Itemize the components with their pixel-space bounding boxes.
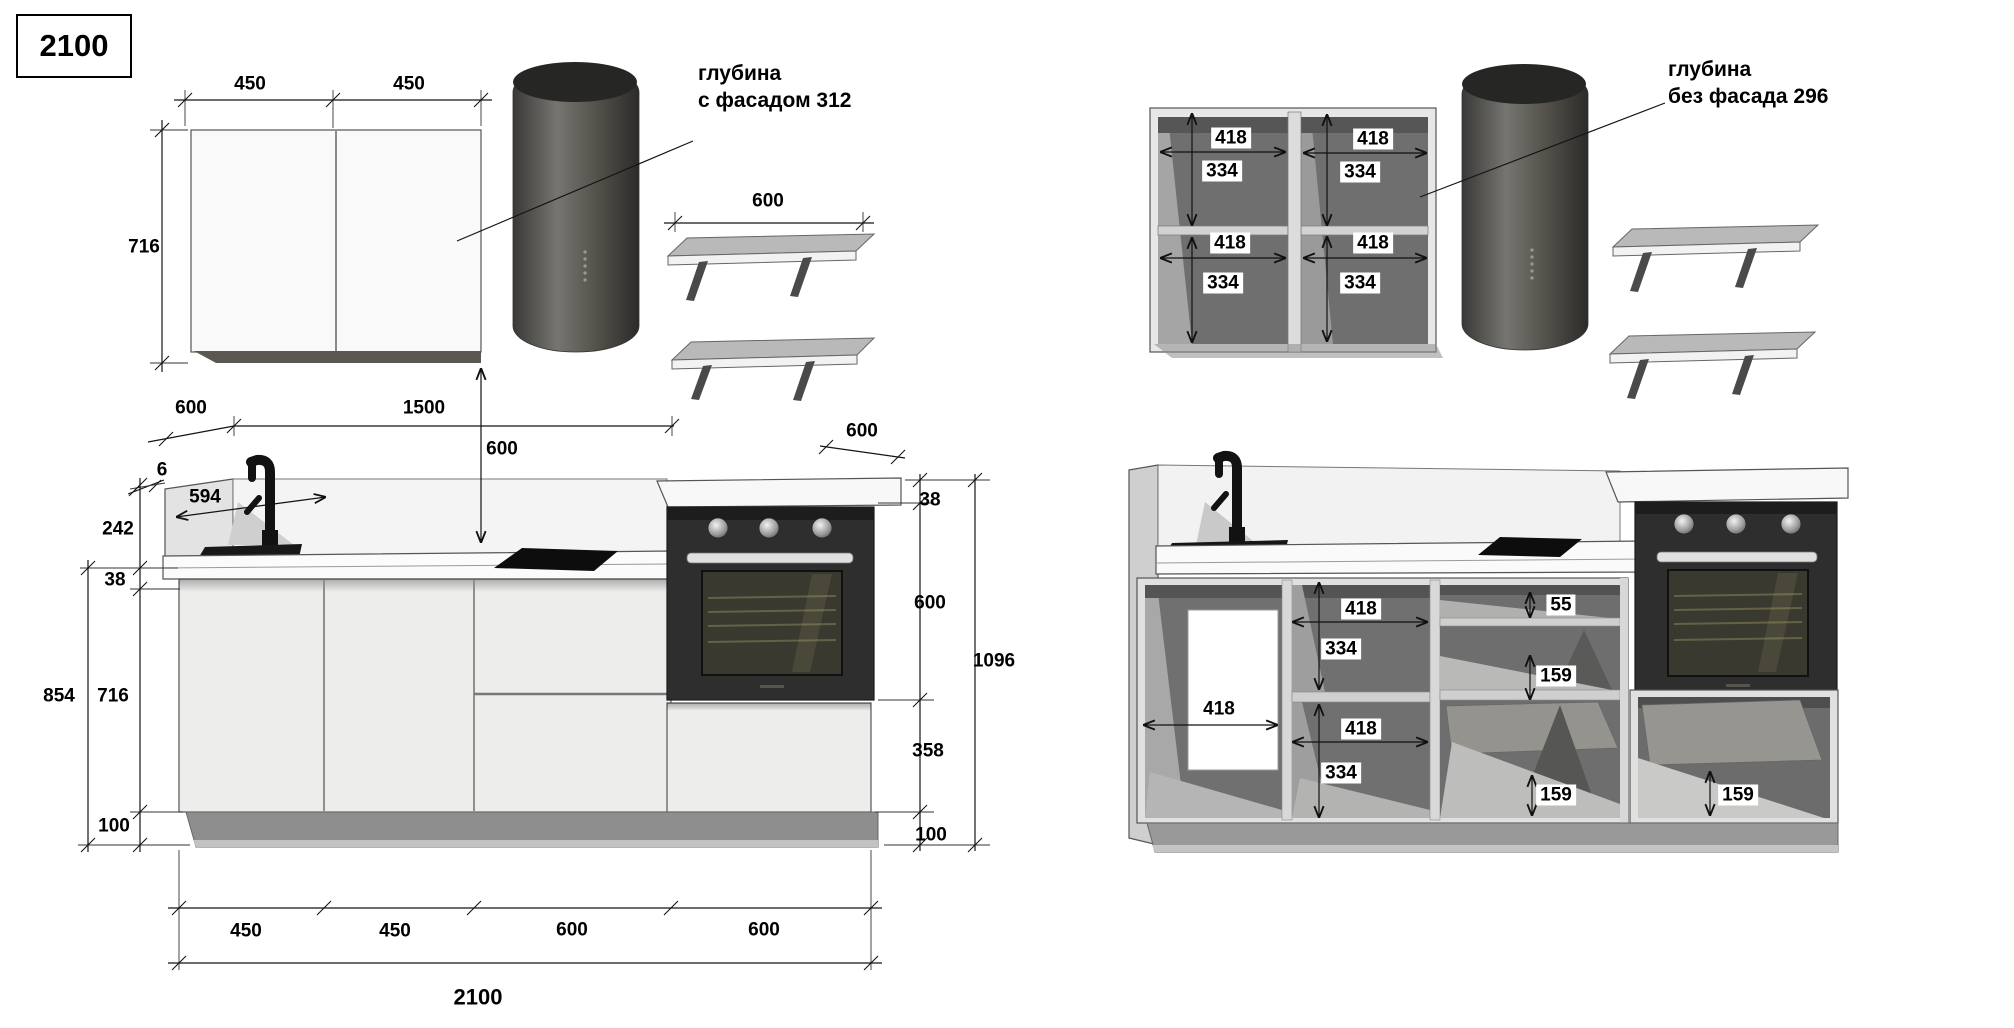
note-depth-without-facade: глубина без фасада 296 (1668, 56, 1828, 110)
dim-rwall-tl-width: 418 (1211, 128, 1251, 149)
dim-total-height-left: 854 (43, 686, 75, 707)
dim-bottom-module-2: 450 (379, 921, 411, 942)
dim-rwall-tr-height: 334 (1340, 162, 1380, 183)
dim-shelf-width: 600 (752, 191, 784, 212)
dim-rbase-mid-drawer: 159 (1536, 666, 1576, 687)
dim-rbase-mid-bot-height: 334 (1321, 763, 1361, 784)
right-oven-tower (1606, 468, 1848, 823)
dim-wall-height: 716 (128, 237, 160, 258)
dim-bottom-total: 2100 (454, 987, 503, 1008)
dim-counter-thickness-right: 38 (919, 490, 940, 511)
left-shelf-icon-1 (668, 234, 874, 301)
dim-rbase-sink-width: 418 (1199, 699, 1239, 720)
dim-splash-depth: 594 (189, 487, 221, 508)
dim-rbase-bottom-drawer: 159 (1536, 785, 1576, 806)
dim-plinth-left: 100 (98, 816, 130, 837)
dim-rwall-bl-height: 334 (1203, 273, 1243, 294)
dim-base-cabinet-height: 716 (97, 686, 129, 707)
dim-counter-thickness-left: 38 (104, 570, 125, 591)
right-shelf-icon-2 (1610, 332, 1815, 399)
dim-bottom-module-1: 450 (230, 921, 262, 942)
dim-left-offset: 600 (175, 398, 207, 419)
left-wall-cabinet (191, 130, 481, 363)
dim-total-height-right: 1096 (973, 651, 1015, 672)
dim-rbase-mid-top-height: 334 (1321, 639, 1361, 660)
dim-wall-door-b: 450 (393, 74, 425, 95)
dim-drawer-height: 358 (912, 741, 944, 762)
dim-bottom-module-3: 600 (556, 920, 588, 941)
dim-splash-height: 242 (102, 519, 134, 540)
dim-rbase-mid-bot-width: 418 (1341, 719, 1381, 740)
dim-rwall-tr-width: 418 (1353, 129, 1393, 150)
dim-rbase-mid-top-width: 418 (1341, 599, 1381, 620)
total-width-title-box: 2100 (16, 14, 132, 78)
dim-rbase-oven-drawer: 159 (1718, 785, 1758, 806)
right-wall-cabinet (1150, 108, 1443, 358)
right-hood-icon (1462, 64, 1588, 350)
dim-rwall-bl-width: 418 (1210, 233, 1250, 254)
left-plinth (186, 812, 878, 847)
dim-rwall-br-width: 418 (1353, 233, 1393, 254)
dim-rwall-tl-height: 334 (1202, 161, 1242, 182)
dim-oven-top-depth: 600 (846, 421, 878, 442)
dim-splash-edge: 6 (157, 460, 168, 481)
drawing-linework: .ln{stroke:#141414;stroke-width:1.2;fill… (0, 0, 2014, 1028)
dim-wall-door-a: 450 (234, 74, 266, 95)
dim-bottom-module-4: 600 (748, 920, 780, 941)
dim-rbase-top-drawer: 55 (1546, 595, 1575, 616)
right-shelf-icon-1 (1613, 225, 1818, 292)
left-hood-icon (513, 62, 639, 352)
dim-rwall-br-height: 334 (1340, 273, 1380, 294)
dim-span: 1500 (403, 398, 445, 419)
note-depth-with-facade: глубина с фасадом 312 (698, 60, 851, 114)
kitchen-drawing-sheet: .ln{stroke:#141414;stroke-width:1.2;fill… (0, 0, 2014, 1028)
left-base-cabinet (179, 579, 671, 812)
total-width-title: 2100 (40, 28, 109, 64)
left-shelf-icon-2 (672, 338, 874, 401)
dim-oven-height: 600 (914, 593, 946, 614)
right-plinth (1147, 823, 1838, 852)
left-oven-tower (657, 478, 901, 812)
dim-plinth-right: 100 (915, 825, 947, 846)
dim-hood-clearance: 600 (486, 439, 518, 460)
